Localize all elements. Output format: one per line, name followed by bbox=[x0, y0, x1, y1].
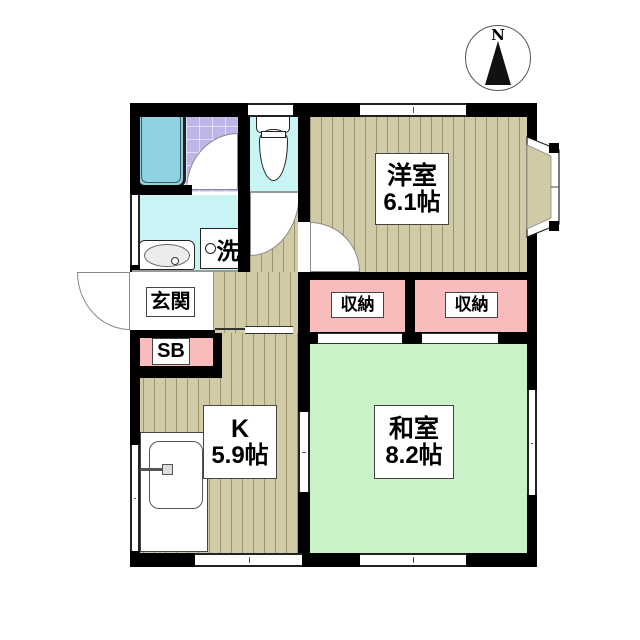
wall-washroom-hall bbox=[238, 185, 250, 272]
japanese-room-label: 和室 8.2帖 bbox=[374, 405, 454, 479]
entrance-text: 玄関 bbox=[151, 292, 191, 313]
kitchen-name: K bbox=[231, 416, 249, 442]
sliding-door-hall-kitchen bbox=[245, 326, 293, 334]
bathtub-inner-line bbox=[141, 113, 181, 183]
storage-left-label: 収納 bbox=[331, 292, 384, 318]
storage-left-text: 収納 bbox=[341, 296, 375, 314]
western-room-name: 洋室 bbox=[387, 163, 437, 189]
storage-right-label: 収納 bbox=[445, 292, 498, 318]
shoebox-label: SB bbox=[152, 338, 190, 365]
wall-top bbox=[130, 103, 537, 117]
entrance-door-opening bbox=[130, 272, 140, 330]
sliding-door-kitchen-japanese bbox=[298, 412, 310, 492]
kitchen-label: K 5.9帖 bbox=[203, 405, 277, 479]
japanese-room-name: 和室 bbox=[389, 416, 439, 442]
wall-bath-washroom bbox=[130, 185, 192, 195]
wall-storage-top bbox=[298, 272, 537, 280]
window-washroom-left bbox=[130, 195, 140, 265]
window-western-top bbox=[360, 103, 466, 117]
window-toilet-top bbox=[248, 103, 293, 117]
window-japanese-bottom bbox=[360, 553, 466, 567]
wash-basin-bowl bbox=[144, 244, 190, 267]
laundry-circle-icon bbox=[205, 243, 216, 254]
kitchen-sink-unit bbox=[140, 432, 208, 552]
compass: N bbox=[465, 25, 531, 91]
western-room-label: 洋室 6.1帖 bbox=[375, 153, 449, 225]
laundry-label: 洗 bbox=[217, 232, 240, 266]
hall-lower-floor bbox=[213, 272, 298, 333]
storage-right-text: 収納 bbox=[455, 296, 489, 314]
washroom-bottom-line bbox=[132, 270, 238, 272]
wall-shoebox-right bbox=[213, 333, 222, 378]
floor-plan: 洗 洋室 6.1帖 和室 bbox=[0, 0, 640, 640]
shoebox-text: SB bbox=[157, 341, 185, 362]
bay-window bbox=[520, 125, 572, 250]
toilet-bottom-line bbox=[250, 191, 298, 193]
hall-kitchen-boundary-line bbox=[215, 328, 245, 330]
toilet-seat bbox=[261, 131, 286, 138]
japanese-room-size: 8.2帖 bbox=[385, 443, 442, 468]
wall-bottom bbox=[130, 553, 537, 567]
compass-needle-icon bbox=[485, 41, 511, 85]
bathtub bbox=[136, 108, 186, 188]
kitchen-size: 5.9帖 bbox=[211, 443, 268, 468]
kitchen-sink bbox=[149, 441, 203, 509]
storage-right-opening bbox=[422, 333, 498, 344]
entrance-label: 玄関 bbox=[146, 287, 195, 317]
wall-entrance-shoebox bbox=[130, 330, 215, 338]
entrance-door-swing bbox=[77, 272, 130, 330]
western-room-size: 6.1帖 bbox=[383, 190, 440, 215]
wash-basin bbox=[138, 240, 195, 270]
wall-shoebox-bottom bbox=[130, 366, 222, 378]
storage-left-opening bbox=[318, 333, 402, 344]
wall-main-vertical-top bbox=[298, 103, 310, 222]
wash-basin-drain bbox=[171, 257, 179, 265]
window-kitchen-bottom bbox=[195, 553, 302, 567]
kitchen-faucet-knob bbox=[162, 464, 173, 475]
window-japanese-right bbox=[527, 390, 537, 495]
wall-storage-divider bbox=[405, 272, 415, 344]
window-kitchen-left bbox=[130, 445, 140, 551]
